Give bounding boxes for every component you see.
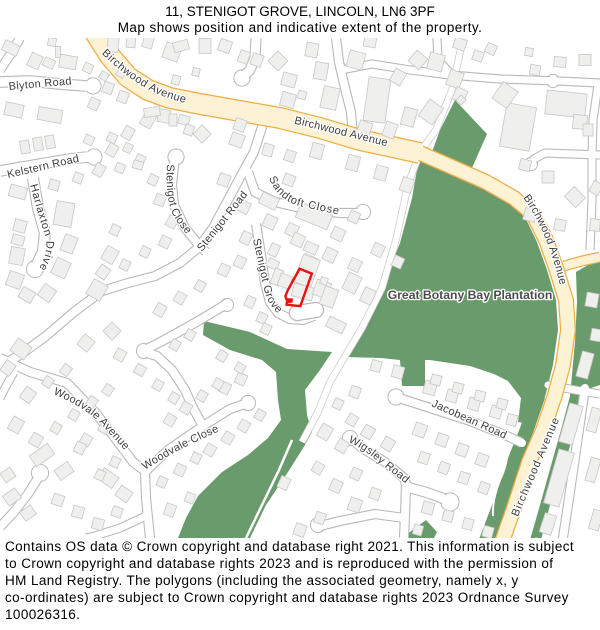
svg-text:to Crown copyright and databas: to Crown copyright and database rights 2… (5, 556, 553, 571)
svg-text:Contains OS data © Crown copyr: Contains OS data © Crown copyright and d… (5, 539, 574, 554)
svg-text:100026316.: 100026316. (5, 607, 80, 622)
svg-text:Great Botany Bay Plantation: Great Botany Bay Plantation (388, 288, 553, 302)
svg-text:11, STENIGOT GROVE, LINCOLN, L: 11, STENIGOT GROVE, LINCOLN, LN6 3PF (165, 4, 435, 19)
svg-text:Map shows position and indicat: Map shows position and indicative extent… (118, 20, 483, 35)
svg-text:HM Land Registry. The polygons: HM Land Registry. The polygons (includin… (5, 573, 519, 588)
svg-text:co-ordinates) are subject to C: co-ordinates) are subject to Crown copyr… (5, 590, 569, 605)
